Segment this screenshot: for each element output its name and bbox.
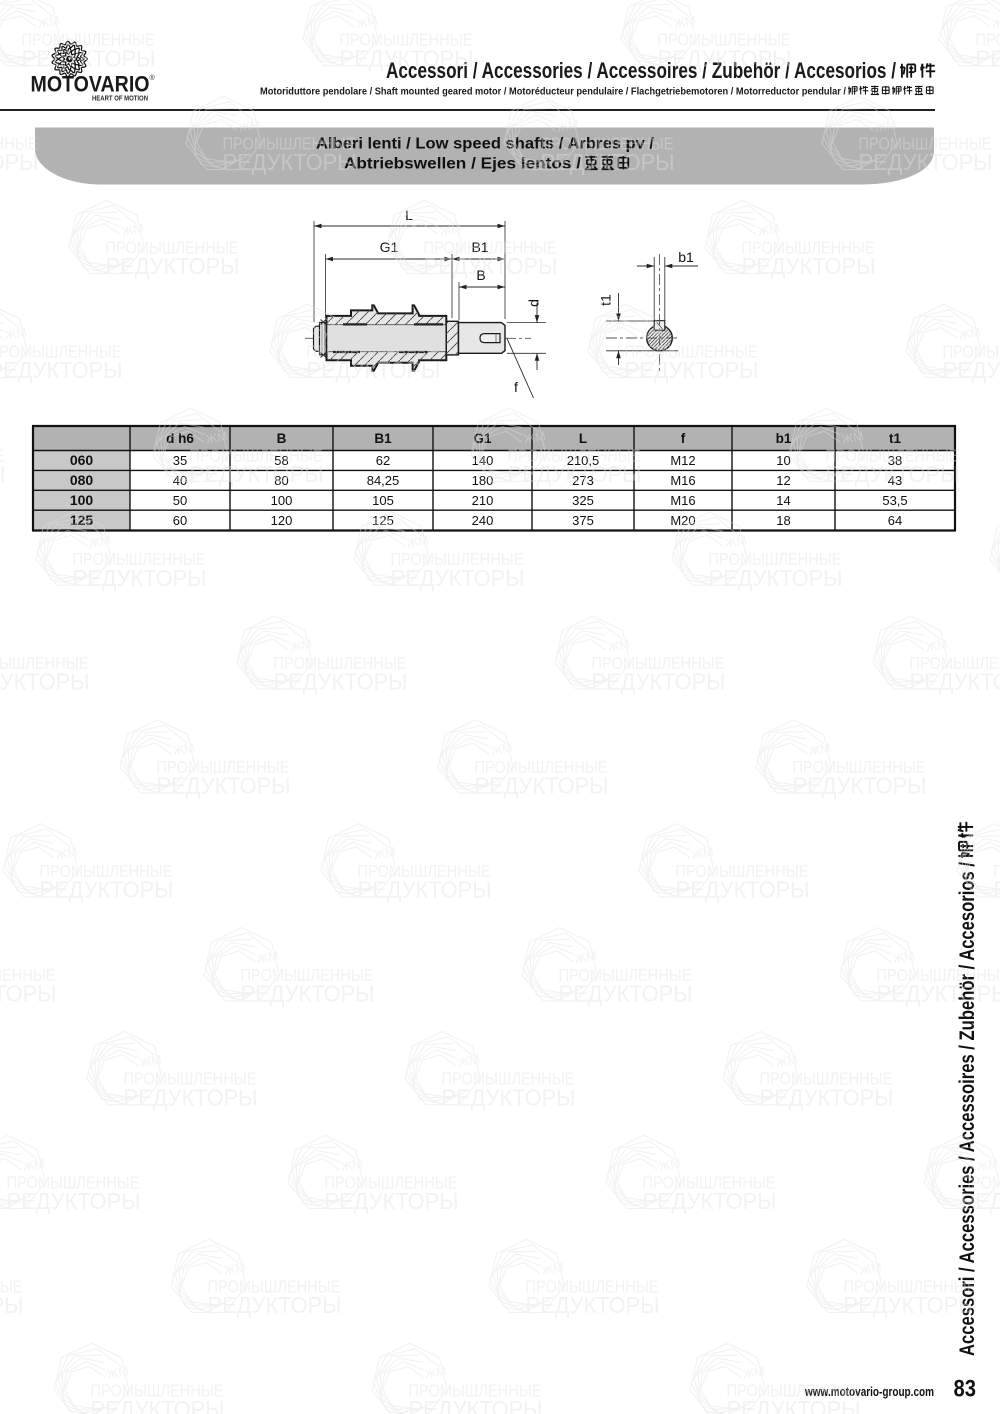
svg-text:120: 120	[271, 513, 293, 528]
svg-text:M12: M12	[670, 453, 695, 468]
svg-text:105: 105	[372, 493, 394, 508]
svg-text:f: f	[514, 379, 518, 395]
svg-text:b1: b1	[776, 431, 792, 446]
svg-text:84,25: 84,25	[367, 473, 400, 488]
svg-text:180: 180	[472, 473, 494, 488]
svg-text:080: 080	[70, 472, 94, 488]
svg-text:MOTOVARIO: MOTOVARIO	[31, 72, 150, 97]
svg-text:M16: M16	[670, 473, 695, 488]
svg-text:35: 35	[173, 453, 187, 468]
svg-text:HEART OF MOTION: HEART OF MOTION	[92, 96, 148, 103]
svg-text:64: 64	[888, 513, 902, 528]
svg-text:100: 100	[271, 493, 293, 508]
svg-text:100: 100	[70, 492, 94, 508]
svg-text:62: 62	[376, 453, 390, 468]
svg-text:B1: B1	[374, 431, 392, 446]
svg-text:53,5: 53,5	[882, 493, 907, 508]
svg-text:f: f	[681, 431, 686, 446]
svg-text:®: ®	[150, 74, 156, 82]
svg-text:18: 18	[776, 513, 790, 528]
svg-text:M16: M16	[670, 493, 695, 508]
svg-text:d: d	[526, 299, 542, 307]
svg-text:210: 210	[472, 493, 494, 508]
svg-text:t1: t1	[598, 294, 614, 306]
svg-text:240: 240	[472, 513, 494, 528]
svg-text:B: B	[277, 431, 287, 446]
svg-text:t1: t1	[889, 431, 901, 446]
svg-text:60: 60	[173, 513, 187, 528]
svg-text:L: L	[579, 431, 587, 446]
svg-text:12: 12	[776, 473, 790, 488]
svg-text:Motoriduttore pendolare / Shaf: Motoriduttore pendolare / Shaft mounted …	[260, 86, 846, 98]
svg-text:14: 14	[776, 493, 790, 508]
svg-text:40: 40	[173, 473, 187, 488]
svg-text:83: 83	[954, 1376, 977, 1403]
svg-text:375: 375	[572, 513, 594, 528]
svg-text:b1: b1	[678, 249, 694, 265]
svg-text:325: 325	[572, 493, 594, 508]
svg-text:060: 060	[70, 452, 94, 468]
svg-text:50: 50	[173, 493, 187, 508]
